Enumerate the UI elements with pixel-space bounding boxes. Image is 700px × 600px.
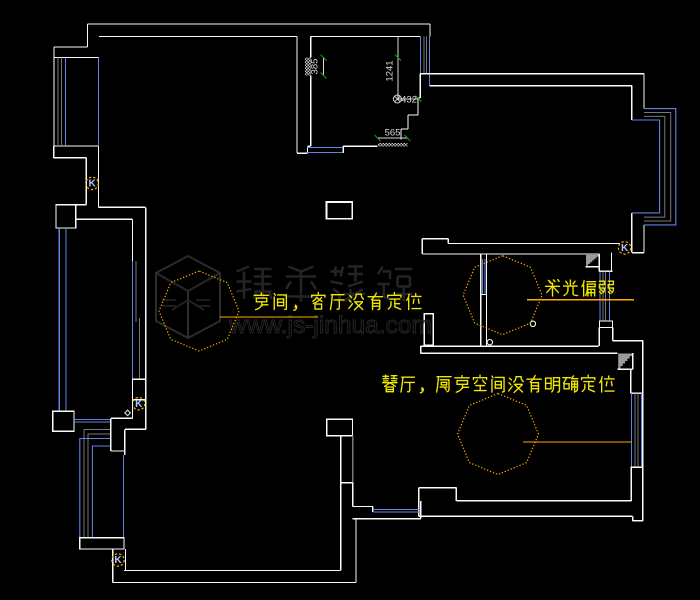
svg-text:432: 432 (401, 95, 417, 106)
svg-text:385: 385 (310, 59, 321, 75)
svg-text:K: K (621, 243, 629, 254)
svg-text:1241: 1241 (385, 60, 396, 81)
svg-text:K: K (135, 399, 143, 410)
svg-text:565: 565 (385, 128, 401, 139)
svg-text:www.js-jinhua.com: www.js-jinhua.com (228, 312, 432, 339)
svg-text:K: K (88, 179, 96, 190)
svg-text:K: K (114, 555, 122, 566)
